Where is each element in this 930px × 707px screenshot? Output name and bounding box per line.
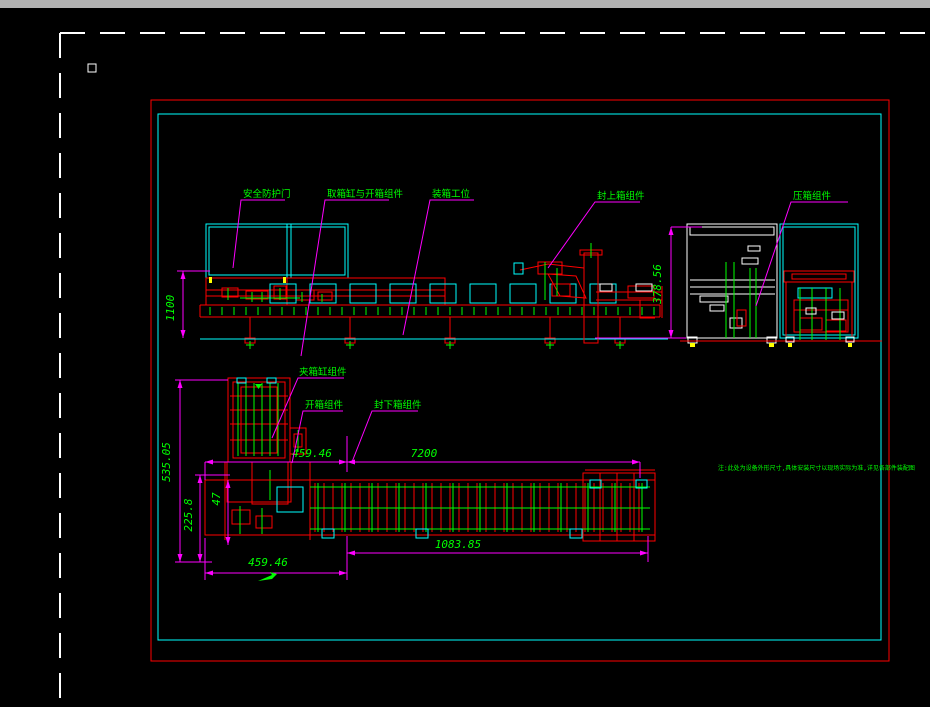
dim-plan-depth: 535.05 (160, 442, 173, 482)
dim-front-height: 1100 (164, 294, 177, 321)
front-view (200, 224, 668, 349)
callout-safety-door: 安全防护门 (243, 188, 291, 200)
dim-infeed-length-2: 459.46 (248, 556, 288, 569)
dim-plan-inner-depth: 225.8 (182, 498, 195, 531)
callout-seal-bottom-box: 封下箱组件 (374, 399, 422, 411)
end-right-detail-2 (832, 312, 844, 319)
magazine-guides (238, 383, 298, 456)
end-right-detail-1 (806, 308, 816, 314)
callout-seal-top-box: 封上箱组件 (597, 190, 645, 202)
infeed-station (225, 462, 310, 540)
sheet-frame (151, 100, 889, 661)
callout-open-box: 开箱组件 (305, 399, 344, 411)
deck-frame (206, 278, 445, 305)
callout-clamp-cylinder: 夹箱缸组件 (299, 366, 347, 378)
dim-total-length: 7200 (411, 447, 438, 460)
deck-marker-1 (209, 277, 212, 283)
dim-end-height: 378.56 (651, 264, 664, 305)
infeed-carton (277, 487, 303, 512)
foot-marker-2 (769, 343, 774, 347)
cad-drawing-canvas[interactable]: 1100 378.56 535.05 225.8 47 459.46 7200 … (0, 0, 930, 707)
callout-press-box: 压箱组件 (793, 190, 832, 202)
conveyor-beam (200, 305, 660, 317)
callout-pick-open-box: 取箱缸与开箱组件 (327, 188, 404, 200)
foot-marker-1 (690, 343, 695, 347)
plan-conveyor-chains (310, 483, 650, 532)
deck-marker-2 (283, 277, 286, 283)
foot-marker-3 (788, 343, 792, 347)
foot-marker-4 (848, 343, 852, 347)
dim-outfeed-length: 1083.85 (435, 538, 481, 551)
grip-square[interactable] (88, 64, 96, 72)
end-view (680, 224, 882, 347)
conveyor-rollers (210, 307, 654, 315)
safety-enclosure (206, 224, 348, 278)
dim-plan-small: 47 (210, 492, 223, 506)
dim-infeed-length: 459.46 (292, 447, 332, 460)
callout-packing-station: 装箱工位 (432, 188, 471, 200)
paper-boundary (60, 33, 930, 707)
drawing-note: 注:此处为设备外形尺寸,具体安装尺寸以现场实际为准,详见各部件装配图 (718, 464, 915, 472)
